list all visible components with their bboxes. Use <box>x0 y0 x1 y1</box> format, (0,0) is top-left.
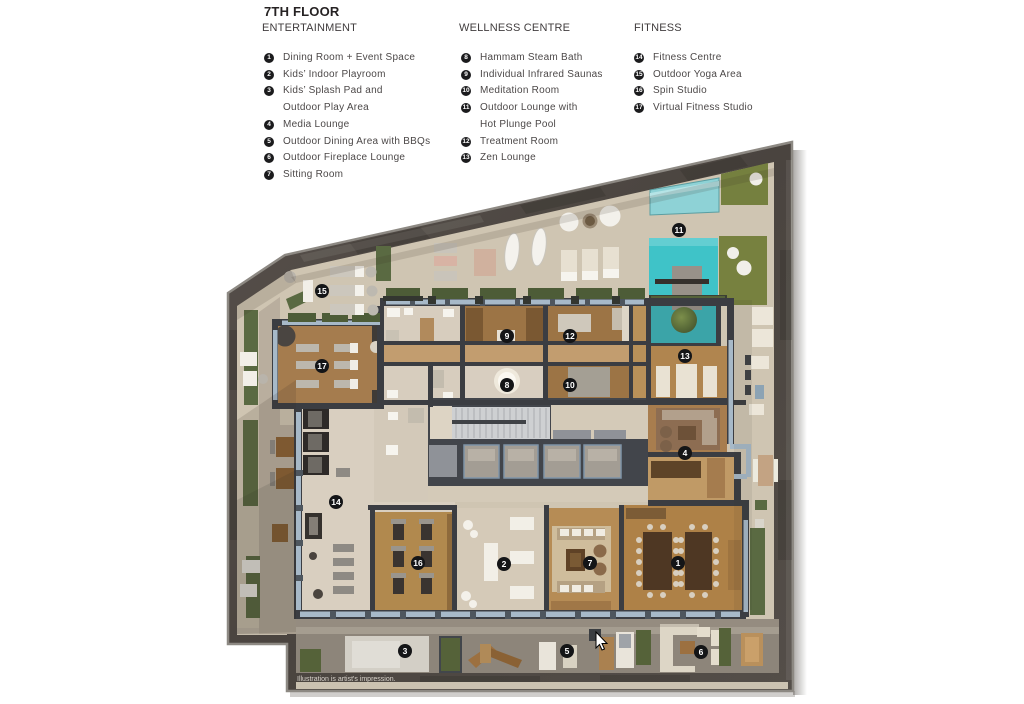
svg-text:3: 3 <box>403 646 408 656</box>
svg-text:6: 6 <box>699 647 704 657</box>
svg-text:5: 5 <box>565 646 570 656</box>
svg-text:14: 14 <box>331 497 341 507</box>
svg-text:4: 4 <box>683 448 688 458</box>
svg-text:12: 12 <box>565 331 575 341</box>
svg-text:16: 16 <box>413 558 423 568</box>
svg-text:Illustration is artist's impre: Illustration is artist's impression. <box>297 676 396 683</box>
svg-text:1: 1 <box>676 558 681 568</box>
svg-text:10: 10 <box>565 380 575 390</box>
svg-text:2: 2 <box>502 559 507 569</box>
svg-text:15: 15 <box>317 286 327 296</box>
svg-text:11: 11 <box>675 225 684 235</box>
svg-text:7: 7 <box>588 558 593 568</box>
svg-text:9: 9 <box>505 331 510 341</box>
svg-text:8: 8 <box>505 380 510 390</box>
svg-text:13: 13 <box>680 351 690 361</box>
svg-text:17: 17 <box>317 361 327 371</box>
